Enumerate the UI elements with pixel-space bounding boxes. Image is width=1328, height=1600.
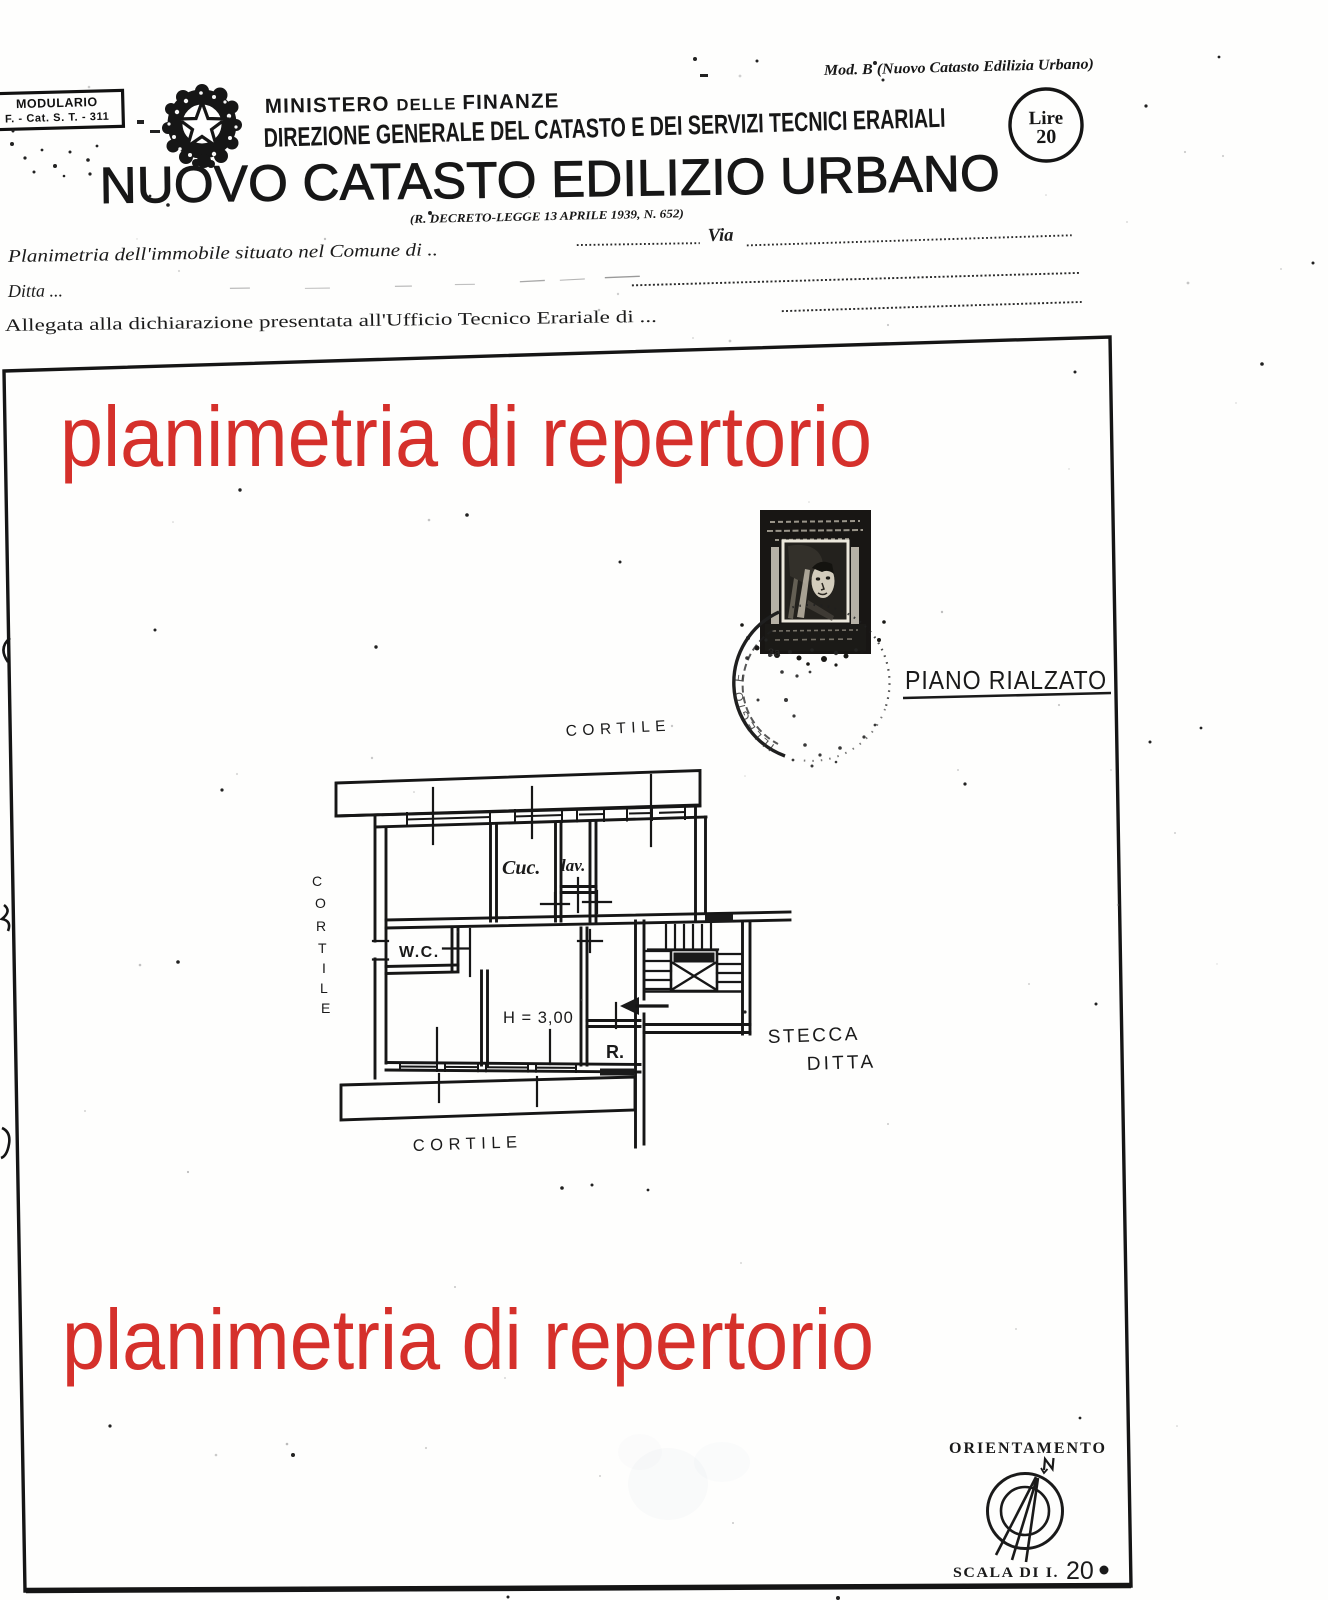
svg-text:Cuc.: Cuc. — [502, 857, 540, 879]
svg-text:F. - Cat. S. T. - 311: F. - Cat. S. T. - 311 — [5, 111, 110, 126]
svg-text:planimetria di repertorio: planimetria di repertorio — [60, 390, 872, 485]
svg-text:Mod. B (Nuovo Catasto Edilizia: Mod. B (Nuovo Catasto Edilizia Urbano) — [823, 56, 1094, 79]
svg-text:I: I — [322, 960, 326, 976]
svg-text:20: 20 — [1036, 126, 1056, 148]
svg-text:planimetria di repertorio: planimetria di repertorio — [62, 1293, 874, 1388]
svg-text:C: C — [312, 873, 322, 889]
svg-text:Ditta ...: Ditta ... — [7, 280, 63, 301]
svg-text:Allegata alla dichiarazione pr: Allegata alla dichiarazione presentata a… — [5, 306, 657, 335]
svg-text:CORTILE: CORTILE — [565, 718, 671, 740]
svg-text:H = 3,00: H = 3,00 — [503, 1009, 574, 1027]
svg-text:CORTILE: CORTILE — [413, 1133, 523, 1155]
svg-text:Planimetria dell'immobile situ: Planimetria dell'immobile situato nel Co… — [7, 239, 438, 266]
svg-text:3a: 3a — [768, 647, 781, 659]
svg-text:R.: R. — [606, 1042, 624, 1062]
svg-text:lav.: lav. — [561, 856, 585, 875]
svg-text:DITTA: DITTA — [806, 1052, 876, 1075]
svg-text:20: 20 — [1066, 1557, 1094, 1585]
svg-text:ORIENTAMENTO: ORIENTAMENTO — [949, 1440, 1107, 1457]
svg-text:E: E — [321, 1000, 330, 1016]
svg-text:O: O — [315, 895, 326, 911]
svg-text:(R. DECRETO-LEGGE 13 APRILE 19: (R. DECRETO-LEGGE 13 APRILE 1939, N. 652… — [410, 206, 684, 226]
svg-text:T: T — [318, 940, 327, 956]
svg-text:MINISTERO DELLE FINANZE: MINISTERO DELLE FINANZE — [265, 89, 560, 118]
svg-text:MODULARIO: MODULARIO — [16, 95, 98, 111]
svg-text:W.C.: W.C. — [399, 944, 440, 961]
svg-text:Via: Via — [708, 226, 734, 246]
svg-text:SCALA DI I.: SCALA DI I. — [953, 1565, 1059, 1581]
svg-text:PIANO RIALZATO: PIANO RIALZATO — [905, 665, 1107, 695]
svg-text:NUOVO CATASTO EDILIZIO URBANO: NUOVO CATASTO EDILIZIO URBANO — [99, 144, 1000, 214]
svg-text:STECCA: STECCA — [767, 1024, 860, 1048]
svg-text:ILLEGIO E: ILLEGIO E — [731, 670, 777, 754]
svg-text:L: L — [320, 980, 328, 996]
svg-text:R: R — [316, 918, 326, 934]
